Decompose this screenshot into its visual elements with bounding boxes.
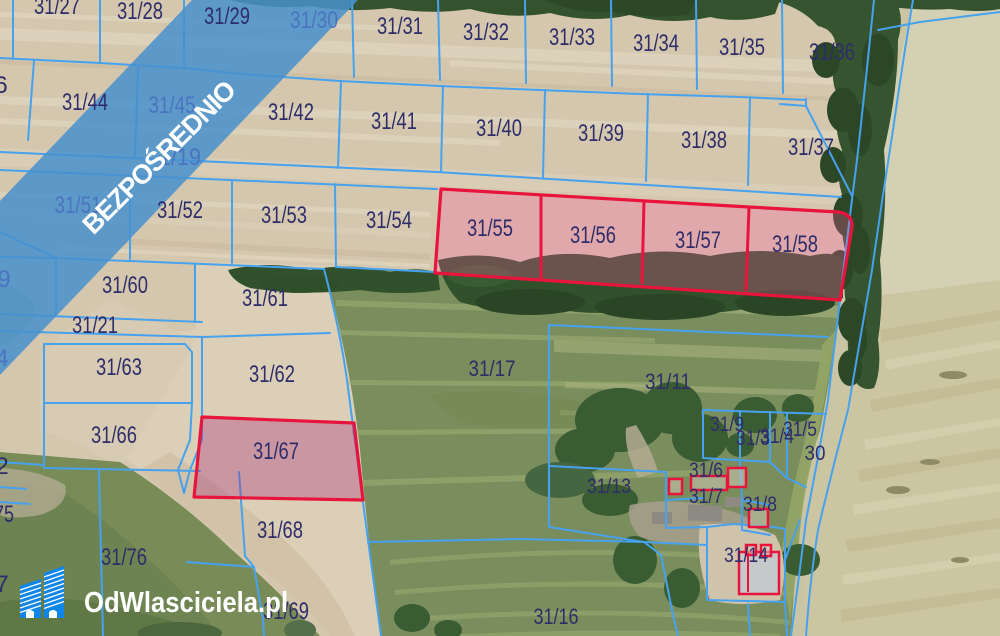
svg-text:31/27: 31/27 <box>34 0 80 20</box>
svg-text:31/41: 31/41 <box>371 108 417 135</box>
svg-text:30: 30 <box>805 442 826 465</box>
svg-text:31/60: 31/60 <box>102 272 148 299</box>
svg-text:31/7: 31/7 <box>689 485 723 508</box>
svg-text:31/76: 31/76 <box>101 544 147 571</box>
svg-text:31/31: 31/31 <box>377 13 423 40</box>
svg-text:6: 6 <box>0 72 8 99</box>
svg-text:31/36: 31/36 <box>809 39 855 66</box>
svg-text:31/13: 31/13 <box>587 475 631 498</box>
svg-text:31/35: 31/35 <box>719 34 765 61</box>
svg-text:31/55: 31/55 <box>467 215 513 242</box>
svg-text:31/34: 31/34 <box>633 30 679 57</box>
svg-text:OdWlasciciela.pl: OdWlasciciela.pl <box>84 587 288 619</box>
svg-text:31/54: 31/54 <box>366 207 412 234</box>
svg-text:31/39: 31/39 <box>578 120 624 147</box>
svg-text:31/16: 31/16 <box>534 604 579 629</box>
svg-text:31/32: 31/32 <box>463 19 509 46</box>
svg-text:31/40: 31/40 <box>476 115 522 142</box>
svg-text:31/11: 31/11 <box>645 369 691 394</box>
svg-text:31/17: 31/17 <box>469 356 516 381</box>
svg-text:75: 75 <box>0 501 14 528</box>
svg-text:31/52: 31/52 <box>157 197 203 224</box>
svg-text:31/44: 31/44 <box>62 89 108 116</box>
svg-text:31/14: 31/14 <box>724 544 768 567</box>
svg-text:31/58: 31/58 <box>772 231 818 258</box>
svg-text:31/62: 31/62 <box>249 361 295 388</box>
svg-text:31/42: 31/42 <box>268 99 314 126</box>
svg-text:31/61: 31/61 <box>242 285 288 312</box>
svg-text:31/8: 31/8 <box>743 493 777 516</box>
svg-text:31/57: 31/57 <box>675 227 721 254</box>
svg-text:31/63: 31/63 <box>96 354 142 381</box>
svg-text:31/53: 31/53 <box>261 202 307 229</box>
svg-text:31/68: 31/68 <box>257 517 303 544</box>
svg-text:31/33: 31/33 <box>549 24 595 51</box>
svg-text:31/5: 31/5 <box>783 418 817 441</box>
svg-text:31/67: 31/67 <box>253 438 299 465</box>
svg-text:31/38: 31/38 <box>681 127 727 154</box>
svg-text:31/37: 31/37 <box>788 134 834 161</box>
svg-text:2: 2 <box>0 453 9 480</box>
svg-text:4: 4 <box>0 345 9 372</box>
svg-text:31/29: 31/29 <box>204 3 250 30</box>
svg-text:31/30: 31/30 <box>290 7 338 34</box>
svg-text:31/6: 31/6 <box>689 459 723 482</box>
svg-text:31/28: 31/28 <box>117 0 163 25</box>
svg-text:9: 9 <box>0 266 11 293</box>
svg-text:31/21: 31/21 <box>72 312 118 339</box>
svg-text:7: 7 <box>0 571 9 598</box>
svg-text:31/66: 31/66 <box>91 422 137 449</box>
svg-text:31/56: 31/56 <box>570 222 616 249</box>
